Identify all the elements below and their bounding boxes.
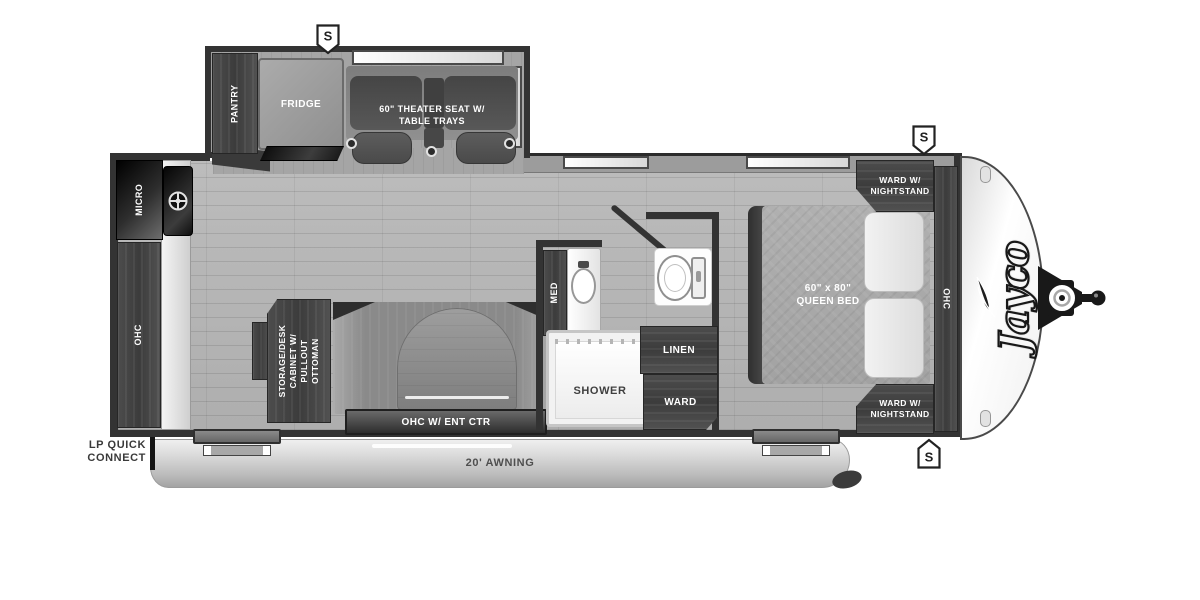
- ward-nightstand-bottom-label: WARD W/ NIGHTSTAND: [860, 398, 929, 420]
- brand-logo: Jayco: [972, 212, 1040, 382]
- speaker-letter: S: [920, 130, 929, 145]
- lp-quick-connect-label: LP QUICK CONNECT: [66, 439, 146, 465]
- cupholder-icon: [504, 138, 515, 149]
- storage-desk-label: STORAGE/DESK CABINET W/ PULLOUT OTTOMAN: [277, 325, 321, 398]
- window-slideout: [352, 50, 504, 65]
- sink: [571, 268, 596, 304]
- fridge: FRIDGE: [258, 58, 344, 150]
- toilet: [654, 248, 712, 306]
- bath-wall-top: [536, 240, 602, 247]
- ward-cabinet: WARD: [643, 374, 718, 430]
- awning-highlight: [372, 444, 512, 448]
- faucet: [578, 261, 589, 268]
- ohc-ent-ctr: OHC W/ ENT CTR: [345, 409, 547, 435]
- lp-quick-connect-fitting: [150, 432, 155, 470]
- brand-logo-text: Jayco: [991, 242, 1038, 351]
- speaker-marker-top-left: S: [315, 23, 341, 55]
- cupholder-icon: [346, 138, 357, 149]
- microwave: MICRO: [116, 160, 163, 240]
- hitch: [1038, 254, 1108, 342]
- theater-seat-label: 60" THEATER SEAT W/ TABLE TRAYS: [354, 104, 510, 127]
- shower: SHOWER: [546, 330, 654, 427]
- awning-label: 20' AWNING: [440, 457, 560, 469]
- ent-console-trim: [405, 396, 509, 399]
- theater-console-foot: [424, 128, 444, 148]
- pantry: PANTRY: [212, 53, 258, 154]
- linen-cabinet: LINEN: [640, 326, 718, 374]
- entry-steps-right: [752, 429, 840, 444]
- bedroom-ohc-label: OHC: [940, 288, 952, 309]
- ent-console-arch: [397, 308, 517, 410]
- theater-ottoman-left: [352, 132, 412, 164]
- counter-flip-up: [260, 146, 344, 161]
- pantry-label: PANTRY: [229, 84, 241, 122]
- pillow-bottom: [864, 298, 924, 378]
- speaker-letter: S: [925, 450, 934, 465]
- burner-icon: [167, 190, 189, 212]
- toilet-bowl-inner: [664, 264, 686, 292]
- linen-label: LINEN: [663, 344, 695, 357]
- microwave-label: MICRO: [134, 184, 146, 216]
- shower-pan: [555, 341, 645, 419]
- entry-steps-left: [193, 429, 281, 444]
- kitchen-ohc: OHC: [117, 242, 161, 428]
- bedroom-ohc: OHC: [934, 166, 958, 432]
- ohc-ent-ctr-label: OHC W/ ENT CTR: [402, 416, 491, 429]
- speaker-letter: S: [324, 29, 333, 44]
- bath-wall-left: [536, 240, 543, 430]
- toilet-flush: [696, 271, 701, 282]
- storage-desk-cabinet: STORAGE/DESK CABINET W/ PULLOUT OTTOMAN: [267, 299, 331, 423]
- toilet-wall-top: [646, 212, 718, 219]
- cooktop: [163, 166, 193, 236]
- med-cabinet-label: MED: [549, 282, 561, 303]
- theater-seat: 60" THEATER SEAT W/ TABLE TRAYS: [346, 66, 518, 164]
- med-cabinet: MED: [543, 250, 567, 336]
- queen-bed-label: 60" x 80" QUEEN BED: [796, 282, 859, 308]
- pillow-top: [864, 212, 924, 292]
- ward-label: WARD: [664, 396, 696, 409]
- window-galley: [563, 156, 649, 169]
- window-bedroom: [746, 156, 850, 169]
- clearance-light-bottom: [980, 410, 991, 427]
- shower-curtain: [555, 339, 645, 344]
- toilet-wall-right: [712, 212, 719, 332]
- ward-nightstand-top-label: WARD W/ NIGHTSTAND: [860, 175, 929, 197]
- speaker-marker-top-right: S: [911, 124, 937, 156]
- floorplan: 20' AWNING LP QUICK CONNECT PANTRY FRIDG…: [0, 0, 1200, 600]
- kitchen-ohc-label: OHC: [133, 324, 145, 345]
- ent-console: [333, 302, 548, 414]
- ent-console-corner-left: [333, 302, 375, 320]
- cupholder-icon: [426, 146, 437, 157]
- shower-label: SHOWER: [573, 385, 626, 397]
- speaker-marker-bottom-right: S: [916, 438, 942, 470]
- desk-side-shelf: [252, 322, 269, 380]
- clearance-light-top: [980, 166, 991, 183]
- entry-steps-right-lower: [762, 445, 830, 456]
- entry-steps-left-lower: [203, 445, 271, 456]
- fridge-label: FRIDGE: [281, 98, 321, 111]
